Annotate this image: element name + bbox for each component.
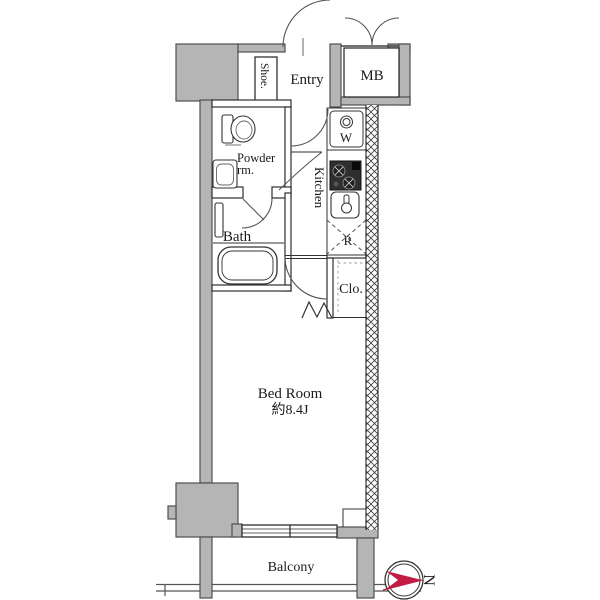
pillar-top-left	[176, 44, 238, 101]
label-shoe: Shoe.	[258, 63, 270, 89]
meter-box	[341, 18, 399, 97]
mb-door-arc-right	[372, 18, 399, 45]
entry-door-arc	[283, 0, 330, 47]
label-kitchen: Kitchen	[312, 167, 327, 209]
pillar-bottom-right	[357, 538, 374, 598]
label-bath: Bath	[223, 229, 252, 245]
north-label: N	[420, 574, 437, 586]
balcony-window	[242, 525, 337, 537]
label-entry: Entry	[290, 72, 324, 88]
toilet-icon	[231, 116, 255, 142]
label-closet: Clo.	[339, 282, 363, 297]
label-powder-line2: rm.	[237, 163, 254, 177]
compass-icon: N	[383, 561, 437, 599]
label-washer: W	[340, 130, 353, 145]
bath-door-leaf	[243, 199, 264, 220]
floor-plan: N Shoe. Entry MB Powder rm. Bath Kitchen…	[0, 0, 600, 600]
pillar-bottom-left	[176, 483, 238, 537]
hall-door-arc	[291, 109, 328, 146]
wall-step-line	[343, 509, 366, 527]
label-bedroom-size: 約8.4J	[272, 402, 309, 418]
label-mb: MB	[360, 68, 383, 84]
left-wall	[200, 100, 212, 483]
label-fridge: R	[344, 233, 353, 248]
label-bedroom-name: Bed Room	[258, 386, 323, 402]
balcony-fence	[156, 585, 421, 597]
label-balcony: Balcony	[268, 560, 315, 575]
mb-door-arc-left	[345, 18, 372, 45]
bath-counter-icon	[215, 203, 223, 237]
